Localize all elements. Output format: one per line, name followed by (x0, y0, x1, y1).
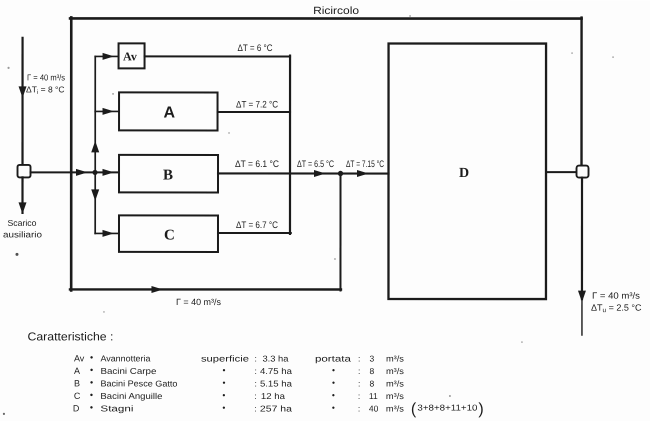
svg-text:ΔT = 6 °C: ΔT = 6 °C (238, 43, 273, 54)
svg-text:D: D (73, 403, 80, 413)
svg-text:•: • (222, 390, 225, 400)
svg-text::: : (254, 353, 256, 363)
svg-text:C: C (74, 391, 81, 401)
svg-text:•: • (332, 390, 335, 400)
svg-text:m³/s: m³/s (386, 391, 404, 401)
svg-text:m³/s: m³/s (386, 354, 404, 364)
svg-text:ΔT = 6.7 °C: ΔT = 6.7 °C (236, 220, 278, 231)
svg-text:8: 8 (369, 366, 374, 376)
svg-text:ΔT = 7.15 °C: ΔT = 7.15 °C (346, 159, 384, 170)
svg-text:m³/s: m³/s (386, 404, 404, 414)
svg-text:257 ha: 257 ha (260, 403, 292, 413)
svg-text:•: • (332, 378, 335, 388)
svg-text:•: • (332, 365, 335, 375)
svg-text::: : (358, 366, 360, 376)
svg-text:ΔT = 6.1 °C: ΔT = 6.1 °C (235, 159, 279, 170)
svg-text::: : (358, 354, 360, 364)
svg-text:4.75 ha: 4.75 ha (260, 366, 292, 376)
svg-text:ΔTu = 2.5 °C: ΔTu = 2.5 °C (591, 303, 642, 315)
svg-text:m³/s: m³/s (386, 379, 404, 389)
svg-text:8: 8 (369, 379, 374, 389)
svg-text:3.3 ha: 3.3 ha (262, 353, 288, 363)
svg-text:•: • (222, 365, 225, 375)
svg-text:superficie: superficie (201, 353, 249, 363)
svg-text::: : (254, 366, 256, 376)
svg-text:(: ( (411, 401, 417, 418)
svg-text:portata: portata (315, 353, 351, 363)
svg-text::: : (254, 378, 256, 388)
svg-text:D: D (459, 166, 469, 181)
svg-text:ΔTi = 8 °C: ΔTi = 8 °C (26, 84, 65, 96)
svg-text:3: 3 (369, 354, 374, 364)
svg-text:C: C (164, 227, 175, 243)
svg-text:Γ = 40 m³/s: Γ = 40 m³/s (176, 297, 221, 307)
svg-text:Γ = 40 m³/s: Γ = 40 m³/s (592, 291, 641, 301)
svg-text:•: • (90, 377, 93, 387)
svg-text:Av: Av (123, 49, 137, 63)
svg-text:m³/s: m³/s (386, 366, 404, 376)
svg-text:B: B (163, 167, 173, 183)
svg-text:•: • (90, 352, 93, 362)
svg-text:Caratteristiche :: Caratteristiche : (27, 331, 113, 343)
svg-text:Scarico: Scarico (7, 218, 36, 228)
svg-text:5.15 ha: 5.15 ha (260, 378, 292, 388)
svg-text::: : (254, 391, 256, 401)
svg-text:Stagni: Stagni (100, 403, 133, 413)
svg-text::: : (358, 404, 360, 414)
svg-text:Av: Av (74, 353, 85, 363)
svg-text:Ricircolo: Ricircolo (313, 5, 359, 17)
svg-text:ΔT = 6.5 °C: ΔT = 6.5 °C (297, 159, 334, 170)
svg-text:Bacini Anguille: Bacini Anguille (100, 391, 162, 401)
svg-text:Avannotteria: Avannotteria (100, 353, 150, 363)
svg-text::: : (358, 391, 360, 401)
svg-text:Bacini Pesce Gatto: Bacini Pesce Gatto (100, 378, 177, 388)
svg-text:): ) (478, 401, 483, 418)
svg-text:•: • (222, 402, 225, 412)
svg-text:Bacini Carpe: Bacini Carpe (100, 366, 156, 376)
svg-text:12 ha: 12 ha (261, 391, 285, 401)
svg-text:3+8+8+11+10: 3+8+8+11+10 (417, 403, 477, 413)
svg-text::: : (358, 379, 360, 389)
svg-text:A: A (74, 366, 80, 376)
svg-text:•: • (90, 390, 93, 400)
svg-text:•: • (222, 377, 225, 387)
svg-text:•: • (90, 365, 93, 375)
svg-text:ausiliario: ausiliario (3, 229, 42, 239)
svg-text:A: A (164, 104, 176, 121)
svg-text:40: 40 (369, 404, 379, 414)
svg-text:•: • (90, 402, 93, 412)
svg-text:•: • (332, 403, 335, 413)
svg-text:B: B (74, 378, 80, 388)
svg-text:ΔT = 7.2 °C: ΔT = 7.2 °C (236, 99, 278, 110)
svg-text::: : (254, 403, 256, 413)
svg-text:Γ = 40 m³/s: Γ = 40 m³/s (27, 72, 65, 82)
svg-text:11: 11 (369, 391, 378, 401)
